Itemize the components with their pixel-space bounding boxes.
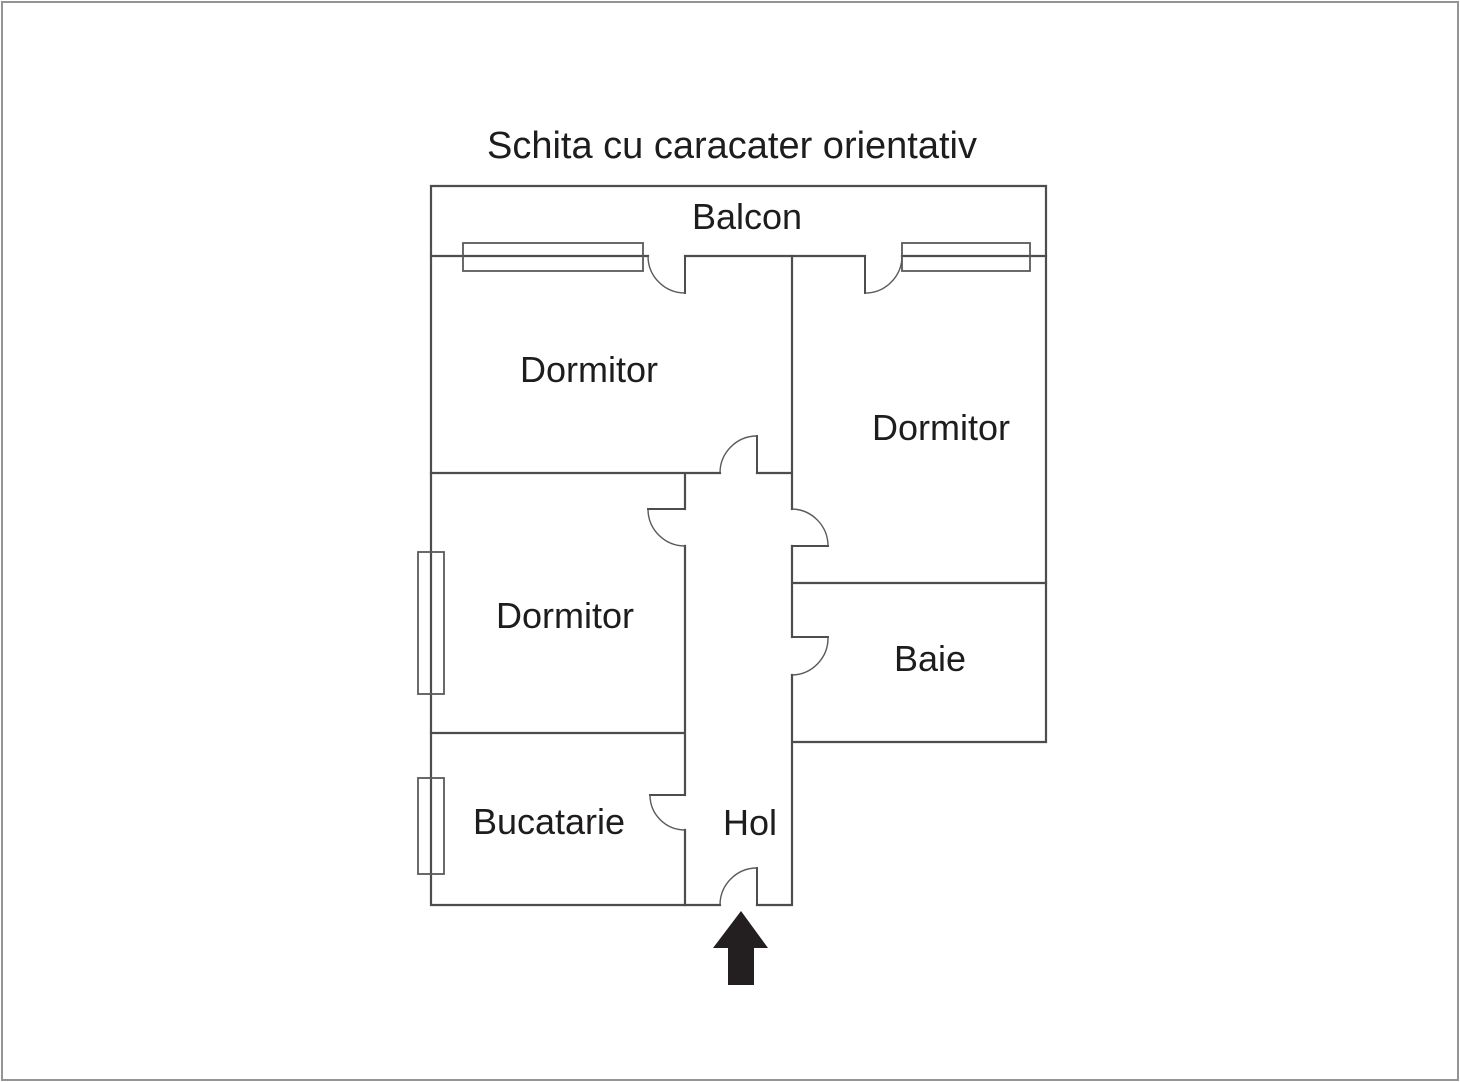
- room-label-dormitor-top-left: Dormitor: [520, 349, 658, 390]
- labels: Schita cu caracater orientativ Balcon Do…: [473, 125, 1010, 843]
- room-label-bucatarie: Bucatarie: [473, 801, 625, 842]
- door-arc-entrance: [720, 868, 757, 905]
- door-arc-balcony-right: [865, 256, 902, 293]
- room-label-dormitor-middle: Dormitor: [496, 595, 634, 636]
- entrance-arrow-icon: [713, 911, 768, 985]
- door-arc-bucatarie: [650, 795, 685, 830]
- outer-walls: [431, 186, 1046, 905]
- apartment-walls: [431, 186, 1046, 905]
- room-label-balcon: Balcon: [692, 196, 802, 237]
- door-arc-balcony-left: [648, 256, 685, 293]
- door-arc-dormitor-middle: [648, 509, 685, 546]
- room-label-hol: Hol: [723, 802, 777, 843]
- room-label-dormitor-right: Dormitor: [872, 407, 1010, 448]
- door-arc-dormitor-right: [792, 509, 828, 546]
- plan-title: Schita cu caracater orientativ: [487, 125, 977, 167]
- door-arc-hol-top: [720, 436, 757, 473]
- door-arc-baie: [792, 637, 828, 675]
- floor-plan-canvas: Schita cu caracater orientativ Balcon Do…: [0, 0, 1460, 1082]
- windows: [418, 243, 1030, 874]
- room-label-baie: Baie: [894, 638, 966, 679]
- floor-plan-svg: Schita cu caracater orientativ Balcon Do…: [0, 0, 1460, 1082]
